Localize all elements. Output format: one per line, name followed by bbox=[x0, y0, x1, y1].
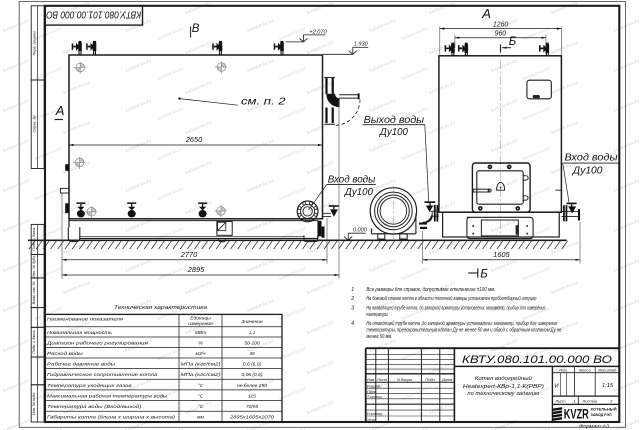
svg-text:Б: Б bbox=[509, 36, 517, 48]
svg-text:м3/ч: м3/ч bbox=[196, 351, 206, 357]
svg-text:°С: °С bbox=[198, 393, 204, 399]
svg-text:°С: °С bbox=[198, 404, 204, 410]
svg-text:Температура воды (Вход/выход): Температура воды (Вход/выход) bbox=[47, 404, 142, 410]
svg-text:КОТЕЛЬНЫЙ: КОТЕЛЬНЫЙ bbox=[591, 407, 617, 412]
svg-text:Подп. и дата: Подп. и дата bbox=[32, 331, 36, 354]
svg-text:Перв. примен.: Перв. примен. bbox=[33, 30, 37, 55]
svg-text:Б: Б bbox=[480, 268, 488, 280]
svg-text:не более 250: не более 250 bbox=[237, 383, 267, 389]
svg-text:Лит.: Лит. bbox=[558, 368, 568, 373]
svg-text:Взам. инв. №: Взам. инв. № bbox=[32, 281, 36, 304]
svg-text:Рабочее давление воды: Рабочее давление воды bbox=[47, 362, 116, 368]
svg-text:Формат А3: Формат А3 bbox=[579, 424, 610, 429]
svg-text:Наименование показателя: Наименование показателя bbox=[47, 317, 123, 323]
svg-text:Инв. № дубл.: Инв. № дубл. bbox=[32, 255, 36, 278]
svg-text:2895: 2895 bbox=[187, 265, 205, 274]
svg-text:2895х1605х2070: 2895х1605х2070 bbox=[229, 415, 274, 421]
svg-text:0,6 (6,0): 0,6 (6,0) bbox=[243, 362, 262, 368]
svg-text:Котел водогрейный: Котел водогрейный bbox=[475, 375, 532, 382]
svg-text:Инв. № подл.: Инв. № подл. bbox=[32, 392, 36, 415]
svg-text:KVZR: KVZR bbox=[564, 407, 589, 422]
svg-text:температуры.: температуры. bbox=[366, 312, 388, 318]
svg-text:Единицы: Единицы bbox=[190, 315, 211, 321]
svg-text:1605: 1605 bbox=[493, 250, 510, 259]
svg-text:°С: °С bbox=[198, 383, 204, 389]
svg-text:измерения: измерения bbox=[188, 322, 213, 327]
svg-text:Лист: Лист bbox=[376, 377, 388, 382]
svg-text:960: 960 bbox=[495, 31, 507, 38]
svg-text:Изм: Изм bbox=[367, 377, 375, 382]
svg-text:Номинальная мощность: Номинальная мощность bbox=[47, 330, 112, 336]
svg-text:по техническому заданию: по техническому заданию bbox=[467, 391, 539, 397]
svg-text:Лист: Лист bbox=[554, 399, 566, 404]
svg-text:КВТУ.080.101.00.000 ВО: КВТУ.080.101.00.000 ВО bbox=[462, 354, 612, 366]
svg-text:Вход воды: Вход воды bbox=[565, 153, 618, 164]
svg-text:Ду100: Ду100 bbox=[379, 127, 408, 138]
svg-text:Значение: Значение bbox=[241, 319, 263, 325]
svg-text:МПа (кгс/см2): МПа (кгс/см2) bbox=[181, 362, 221, 368]
svg-text:Температура уходящих газов: Температура уходящих газов bbox=[47, 383, 132, 389]
svg-text:Все размеры для справок, допус: Все размеры для справок, допустимое откл… bbox=[366, 287, 495, 293]
svg-text:Подп.: Подп. bbox=[425, 377, 435, 382]
svg-text:см. п. 2: см. п. 2 bbox=[241, 96, 286, 107]
svg-text:МВт: МВт bbox=[195, 330, 206, 336]
svg-text:2770: 2770 bbox=[180, 250, 198, 259]
svg-text:3: 3 bbox=[351, 305, 354, 311]
svg-text:1260: 1260 bbox=[493, 21, 508, 28]
svg-text:N докум.: N докум. bbox=[397, 377, 413, 382]
svg-text:Разраб.: Разраб. bbox=[367, 383, 381, 388]
svg-text:Heatexpert-КВр-1,1-К(РВР): Heatexpert-КВр-1,1-К(РВР) bbox=[463, 384, 544, 390]
svg-text:Максимальная рабочая температу: Максимальная рабочая температура воды bbox=[47, 393, 168, 399]
svg-text:Утв.: Утв. bbox=[367, 417, 376, 422]
svg-text:1.930: 1.930 bbox=[354, 42, 369, 48]
svg-text:Габариты котла (длина х ширина: Габариты котла (длина х ширина х высота) bbox=[47, 415, 175, 421]
svg-text:Т.контр.: Т.контр. bbox=[367, 394, 383, 399]
svg-text:38: 38 bbox=[249, 351, 255, 357]
svg-text:Техническая характеристика: Техническая характеристика bbox=[114, 305, 208, 311]
svg-text:Листов: Листов bbox=[582, 399, 598, 404]
svg-text:70/95: 70/95 bbox=[246, 404, 259, 410]
svg-text:В: В bbox=[192, 23, 200, 35]
svg-text:Гидравлическое сопротивление к: Гидравлическое сопротивление котла bbox=[47, 372, 158, 378]
svg-text:Расход воды: Расход воды bbox=[47, 351, 83, 357]
svg-text:Н.контр.: Н.контр. bbox=[367, 411, 383, 416]
svg-text:температуры, предохранительный: температуры, предохранительный клапан Ду… bbox=[366, 326, 561, 333]
svg-text:2650: 2650 bbox=[185, 135, 203, 144]
svg-text:0,06 (0,6): 0,06 (0,6) bbox=[242, 372, 263, 378]
svg-text:КВТУ.080.101.00.000 ВО: КВТУ.080.101.00.000 ВО bbox=[46, 9, 141, 21]
svg-text:МПа (кгс/см2): МПа (кгс/см2) bbox=[181, 372, 221, 378]
svg-text:Дата: Дата bbox=[441, 377, 453, 382]
svg-text:%: % bbox=[198, 340, 203, 346]
svg-text:На боковой стенке котла в обла: На боковой стенке котла в области топочн… bbox=[366, 295, 536, 302]
svg-text:2: 2 bbox=[350, 296, 354, 302]
svg-text:А: А bbox=[481, 6, 491, 21]
svg-text:50-100: 50-100 bbox=[244, 340, 260, 346]
svg-text:1,1: 1,1 bbox=[249, 330, 256, 336]
svg-text:Справ. №: Справ. № bbox=[33, 115, 37, 132]
svg-text:0.000: 0.000 bbox=[353, 228, 368, 234]
svg-text:Масса: Масса bbox=[579, 368, 591, 373]
svg-text:1: 1 bbox=[351, 287, 354, 293]
svg-text:А: А bbox=[55, 103, 65, 118]
svg-text:На отводящей трубе котла ,до з: На отводящей трубе котла ,до запорной ар… bbox=[366, 320, 557, 327]
svg-text:Ду100: Ду100 bbox=[344, 187, 373, 198]
svg-text:115: 115 bbox=[248, 393, 256, 399]
svg-text:Масштаб: Масштаб bbox=[598, 368, 617, 373]
svg-text:мм: мм bbox=[197, 416, 204, 421]
svg-text:+2.070: +2.070 bbox=[309, 29, 327, 35]
svg-text:4: 4 bbox=[351, 321, 354, 327]
svg-text:И: И bbox=[555, 384, 559, 390]
svg-text:менее 50 мм.: менее 50 мм. bbox=[366, 334, 392, 340]
svg-text:Диапазон рабочего регулировани: Диапазон рабочего регулирования bbox=[46, 340, 148, 346]
svg-text:Пров.: Пров. bbox=[367, 389, 377, 394]
svg-text:1:15: 1:15 bbox=[602, 383, 614, 389]
svg-text:ЗАВОД РЭП: ЗАВОД РЭП bbox=[591, 412, 612, 417]
svg-text:На подводящей трубе котла, д: На подводящей трубе котла, до запорной а… bbox=[366, 304, 545, 311]
svg-text:1: 1 bbox=[573, 399, 575, 404]
svg-text:Ду100: Ду100 bbox=[572, 166, 603, 177]
